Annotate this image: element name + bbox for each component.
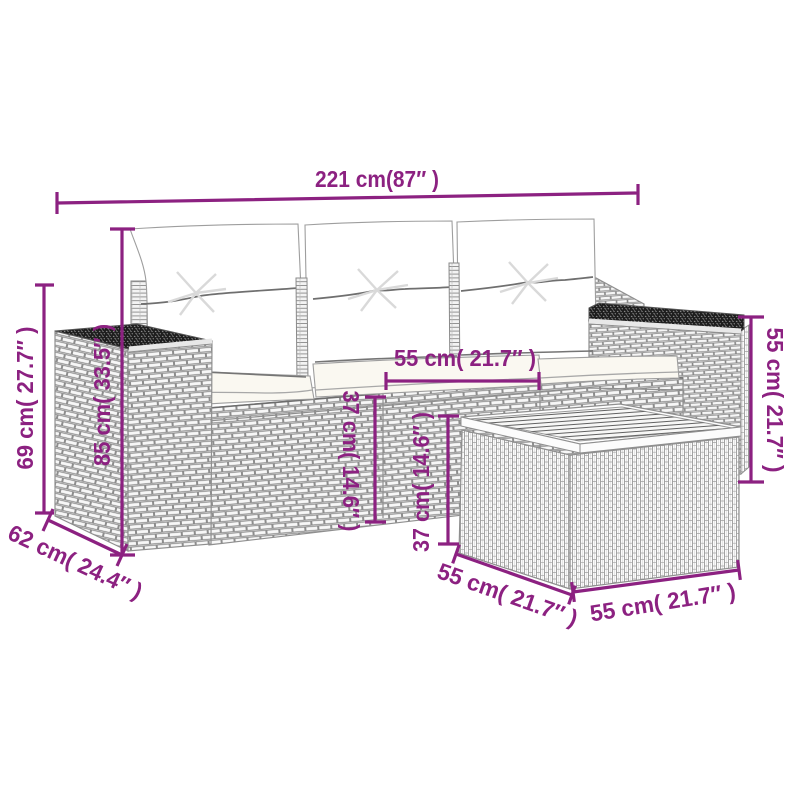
svg-text:69 cm( 27.7″ ): 69 cm( 27.7″ ): [12, 327, 38, 470]
svg-text:55 cm( 21.7″ ): 55 cm( 21.7″ ): [394, 345, 536, 371]
svg-text:55 cm( 21.7″ ): 55 cm( 21.7″ ): [762, 328, 788, 473]
svg-text:37 cm( 14.6″ ): 37 cm( 14.6″ ): [338, 391, 364, 532]
svg-text:221 cm(87″ ): 221 cm(87″ ): [315, 166, 439, 192]
svg-text:37 cm( 14.6″ ): 37 cm( 14.6″ ): [408, 412, 434, 552]
svg-text:85 cm( 33.5″ ): 85 cm( 33.5″ ): [89, 324, 115, 466]
